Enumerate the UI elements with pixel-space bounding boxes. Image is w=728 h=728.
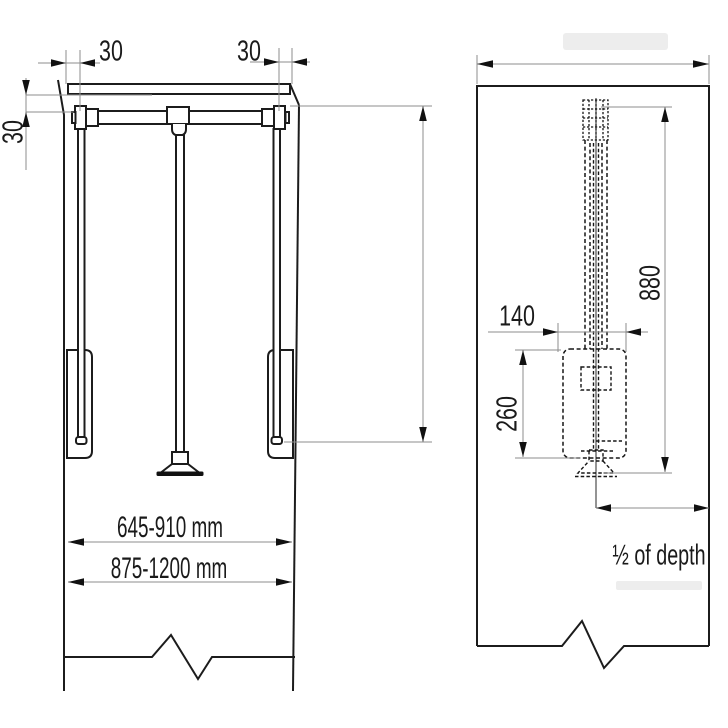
dim-label-half-depth: ½ of depth <box>612 542 705 571</box>
cabinet-top-board <box>68 84 290 94</box>
arrowhead <box>276 578 292 586</box>
side-dimensions <box>477 55 709 512</box>
arrowhead <box>661 107 669 122</box>
dim-label-140: 140 <box>499 303 535 332</box>
left-rail-cap <box>86 109 98 126</box>
arrowhead <box>661 457 669 472</box>
left-rod-end-cap <box>76 437 87 444</box>
dim-line-rod-drop <box>284 106 432 442</box>
top-bracket-hidden <box>583 100 608 140</box>
dim-line-260 <box>515 350 580 458</box>
cabinet-left-panel-edge <box>58 80 64 691</box>
drawing-canvas: 30 30 30 645-910 mm 875-1200 mm 880 140 … <box>0 0 728 728</box>
arrowhead <box>477 60 493 68</box>
arrowhead <box>51 59 66 67</box>
dim-label-inner-width: 645-910 mm <box>117 513 223 543</box>
arrowhead <box>693 60 709 68</box>
pull-rod <box>176 135 184 452</box>
right-rod-end-cap <box>272 437 283 444</box>
arrowhead <box>22 80 30 95</box>
arrowhead <box>419 427 427 442</box>
arrowhead <box>543 328 558 336</box>
dim-label-880: 880 <box>637 265 666 301</box>
left-mount-nub <box>72 112 76 123</box>
cabinet-top-right-chamfer <box>290 84 299 105</box>
lift-mechanism-side-hidden <box>563 98 626 508</box>
erased-label-smudge-bottom <box>616 581 702 590</box>
pull-handle-collar <box>172 452 188 464</box>
dim-label-30-top-right: 30 <box>237 38 261 67</box>
arrowhead <box>626 328 641 336</box>
right-mount-nub <box>286 112 290 123</box>
arrowhead <box>276 538 292 546</box>
side-view <box>477 33 709 668</box>
dim-line-30-left <box>38 50 100 111</box>
drive-unit-hidden <box>563 349 626 458</box>
arrowhead <box>80 59 95 67</box>
technical-drawing <box>0 0 728 728</box>
dim-line-depth <box>477 55 709 84</box>
dim-label-outer-width: 875-1200 mm <box>111 554 228 584</box>
dim-label-30-vertical: 30 <box>0 120 29 144</box>
lift-mechanism-front <box>67 106 293 476</box>
left-side-rod <box>78 129 85 438</box>
pull-handle-cone <box>161 464 199 473</box>
right-rail-cap <box>262 109 274 126</box>
arrowhead <box>68 578 84 586</box>
arrowhead <box>596 504 611 512</box>
erased-label-smudge-top <box>563 33 668 50</box>
right-side-rod <box>274 129 281 438</box>
arrowhead <box>519 442 527 457</box>
arrowhead <box>292 58 307 66</box>
arrowhead <box>68 538 84 546</box>
center-connector-block <box>167 107 189 124</box>
arrowhead <box>419 106 427 121</box>
arrowhead <box>519 350 527 365</box>
dim-label-260: 260 <box>494 396 523 432</box>
cabinet-bottom-break-line <box>64 635 295 679</box>
dim-label-30-top-left: 30 <box>99 38 123 67</box>
arrowhead <box>264 58 279 66</box>
arrowhead <box>694 504 709 512</box>
front-view <box>22 48 432 691</box>
center-connector-tab <box>172 124 186 136</box>
pull-handle-base <box>157 472 204 477</box>
side-bottom-break-line <box>477 621 709 668</box>
